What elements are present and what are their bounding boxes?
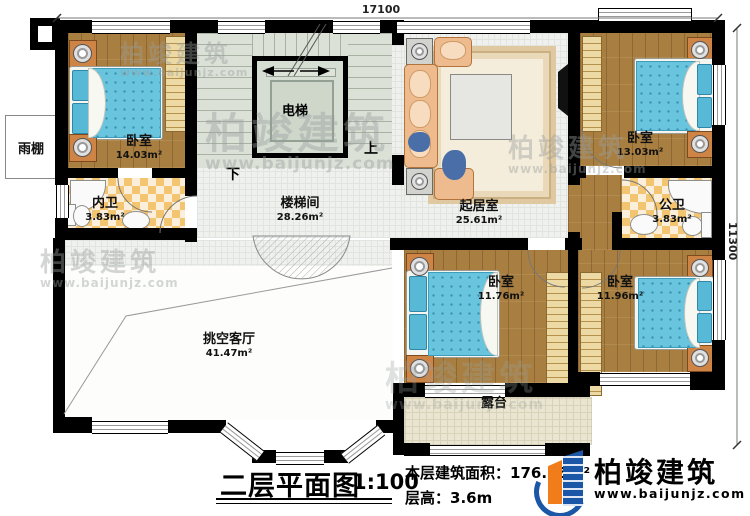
room-label-living: 起居室 25.61m²	[429, 200, 529, 226]
wall	[505, 383, 568, 397]
wall	[618, 238, 715, 250]
wall	[55, 20, 68, 185]
wall	[568, 250, 578, 397]
lamp-icon	[410, 359, 429, 378]
terrace-railing	[430, 445, 545, 456]
pillow	[697, 281, 712, 311]
wall	[265, 20, 333, 33]
brand-logo-icon	[534, 450, 592, 512]
room-label-bedroom-tr: 卧室 13.03m²	[590, 132, 690, 158]
lamp-icon	[691, 135, 709, 153]
person-figure	[408, 132, 430, 152]
wardrobe	[165, 36, 187, 132]
title-underline	[216, 503, 392, 504]
wall	[55, 228, 197, 240]
wall	[185, 20, 197, 196]
window	[713, 260, 726, 340]
room-label-terrace: 露台	[444, 397, 544, 412]
stair-treads-right	[348, 33, 392, 147]
room-label-inner-bath: 内卫 3.83m²	[65, 197, 145, 223]
lamp-icon	[73, 44, 92, 63]
wall	[712, 20, 725, 65]
stair-up-label: 上	[364, 138, 378, 158]
wall	[393, 383, 404, 455]
wall	[568, 33, 580, 185]
wall	[712, 340, 725, 390]
wall	[565, 238, 582, 250]
wall	[580, 166, 586, 178]
pillow	[697, 97, 712, 128]
elevator-label: 电梯	[252, 100, 338, 119]
lamp-icon	[691, 259, 709, 277]
room-label-public-bath: 公卫 3.83m²	[622, 199, 722, 225]
room-label-bedroom-br: 卧室 11.96m²	[570, 276, 670, 302]
stair-treads-top	[252, 33, 348, 56]
wall	[392, 155, 404, 185]
window	[92, 421, 168, 434]
wall	[68, 168, 118, 178]
wall	[712, 125, 725, 260]
floor-plan-canvas: 17100 11300 雨棚 卧室 14.03m² 内卫 3.83m² 楼梯间 …	[0, 0, 750, 516]
elevator-rail	[266, 68, 336, 77]
floor-height-line: 层高：3.6m	[405, 487, 492, 508]
lamp-icon	[691, 349, 709, 367]
logo-building-orange	[548, 460, 562, 504]
wall	[55, 417, 92, 433]
wall	[152, 168, 185, 178]
window	[218, 21, 265, 34]
wall	[578, 372, 600, 386]
room-label-bedroom-tl: 卧室 14.03m²	[89, 135, 189, 161]
coffee-table	[450, 74, 512, 140]
dimension-right: 11300	[726, 222, 739, 260]
lamp-icon	[410, 257, 429, 276]
window	[713, 65, 726, 125]
bay-window	[341, 425, 385, 464]
lamp-icon	[411, 173, 428, 190]
sofa-cushion	[440, 41, 466, 60]
room-label-stair-hall: 楼梯间 28.26m²	[250, 197, 350, 223]
title-underline	[216, 498, 392, 500]
brand-url: www.baijunjz.com	[594, 486, 746, 501]
pillow	[697, 313, 712, 343]
wall	[690, 372, 712, 390]
pillow	[409, 314, 427, 350]
room-label-bedroom-bm: 卧室 11.76m²	[451, 276, 551, 302]
sofa-cushion	[409, 100, 431, 128]
dimension-top: 17100	[355, 3, 407, 16]
window	[600, 373, 690, 386]
canopy-label: 雨棚	[18, 138, 44, 157]
person-figure	[442, 150, 466, 180]
brand-name: 柏竣建筑	[594, 451, 718, 491]
canopy-box: 雨棚	[5, 115, 57, 179]
bay-window	[598, 8, 692, 22]
pillow	[409, 276, 427, 312]
logo-building-blue	[563, 450, 583, 506]
wardrobe	[582, 36, 602, 132]
lamp-icon	[411, 43, 428, 60]
stair-down-label: 下	[226, 164, 240, 184]
window	[92, 21, 170, 34]
wall	[168, 420, 226, 433]
wall	[53, 238, 65, 433]
window	[397, 21, 530, 34]
sofa-cushion	[409, 70, 431, 98]
lamp-icon	[691, 41, 709, 59]
hall-strip-floor	[65, 240, 392, 266]
bay-window	[220, 422, 264, 461]
wall	[404, 383, 425, 397]
stair-treads-left	[197, 33, 252, 161]
wall	[390, 238, 528, 250]
window	[333, 21, 380, 34]
wall	[404, 443, 430, 456]
wall	[624, 166, 712, 178]
room-label-void-living: 挑空客厅 41.47m²	[179, 333, 279, 359]
pillow	[697, 64, 712, 95]
